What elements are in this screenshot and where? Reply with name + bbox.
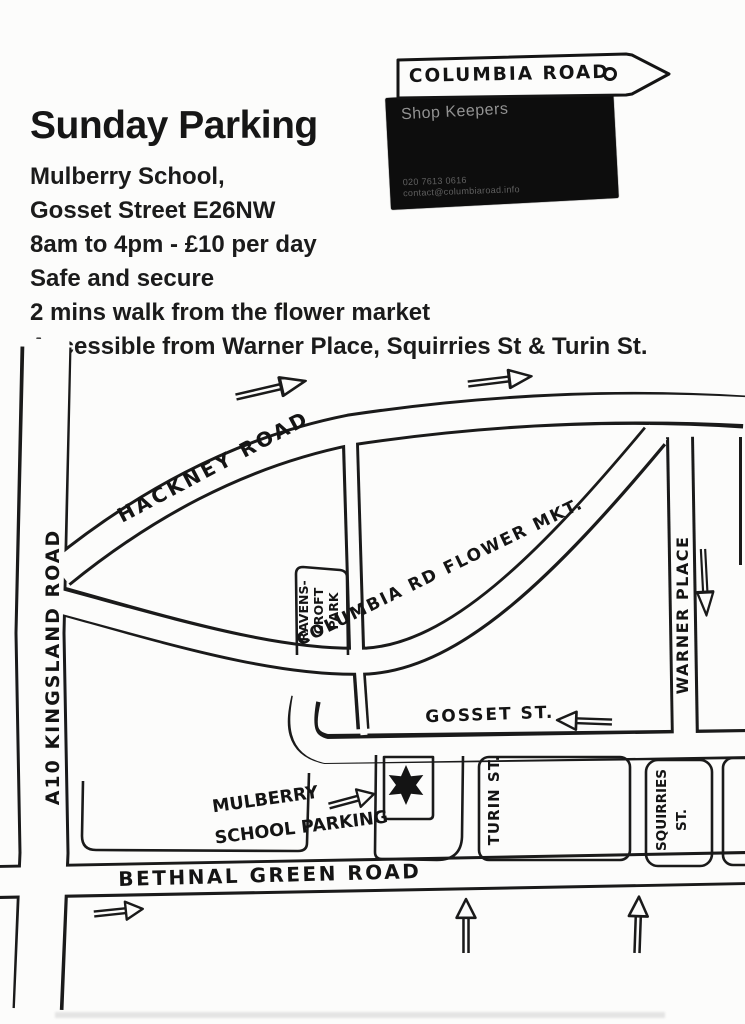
hand-drawn-map: HACKNEY ROAD A10 KINGSLAND ROAD COLUMBIA… (0, 333, 745, 1021)
label-gosset-st: GOSSET ST. (425, 703, 555, 727)
info-line-venue: Mulberry School, (30, 160, 720, 194)
scanned-parking-flyer: Shop Keepers 020 7613 0616 contact@colum… (0, 0, 745, 1024)
label-ravenscroft-line2: CROFT (311, 587, 326, 634)
columbia-road-sign: COLUMBIA ROAD (392, 46, 682, 108)
label-warner-place: WARNER PLACE (673, 536, 692, 695)
school-block (375, 755, 463, 860)
road-middle-fill (350, 425, 357, 666)
label-squirries-st-line1: SQUIRRIES (654, 769, 670, 851)
info-line-price: 8am to 4pm - £10 per day (30, 228, 720, 262)
arrow-up-icon (628, 896, 649, 953)
info-line-walk: 2 mins walk from the flower market (30, 296, 720, 330)
scan-artifact (55, 1012, 665, 1018)
school-star-marker-icon (389, 765, 424, 805)
label-ravenscroft-line1: RAVENS- (296, 580, 311, 641)
arrow-down-icon (695, 549, 715, 616)
city-blocks (82, 567, 745, 866)
road-middle-stub-fill (359, 665, 364, 735)
label-ravenscroft-line3: PARK (326, 591, 341, 629)
sign-label: COLUMBIA ROAD (409, 62, 610, 87)
arrow-right-icon (93, 900, 144, 923)
label-hackney-road: HACKNEY ROAD (113, 406, 313, 528)
label-squirries-st-line2: ST. (674, 809, 690, 831)
label-mulberry-line1: MULBERRY (211, 783, 320, 818)
info-line-secure: Safe and secure (30, 262, 720, 296)
label-a10-kingsland-road: A10 KINGSLAND ROAD (42, 529, 64, 806)
arrow-right-icon (234, 372, 307, 406)
east-block (723, 758, 745, 865)
arrow-up-icon (457, 899, 476, 953)
page-title: Sunday Parking (30, 104, 318, 148)
arrow-left-icon (557, 711, 612, 731)
info-line-address: Gosset Street E26NW (30, 194, 720, 228)
arrow-right-icon (467, 367, 532, 393)
label-turin-st: TURIN ST. (485, 755, 503, 846)
